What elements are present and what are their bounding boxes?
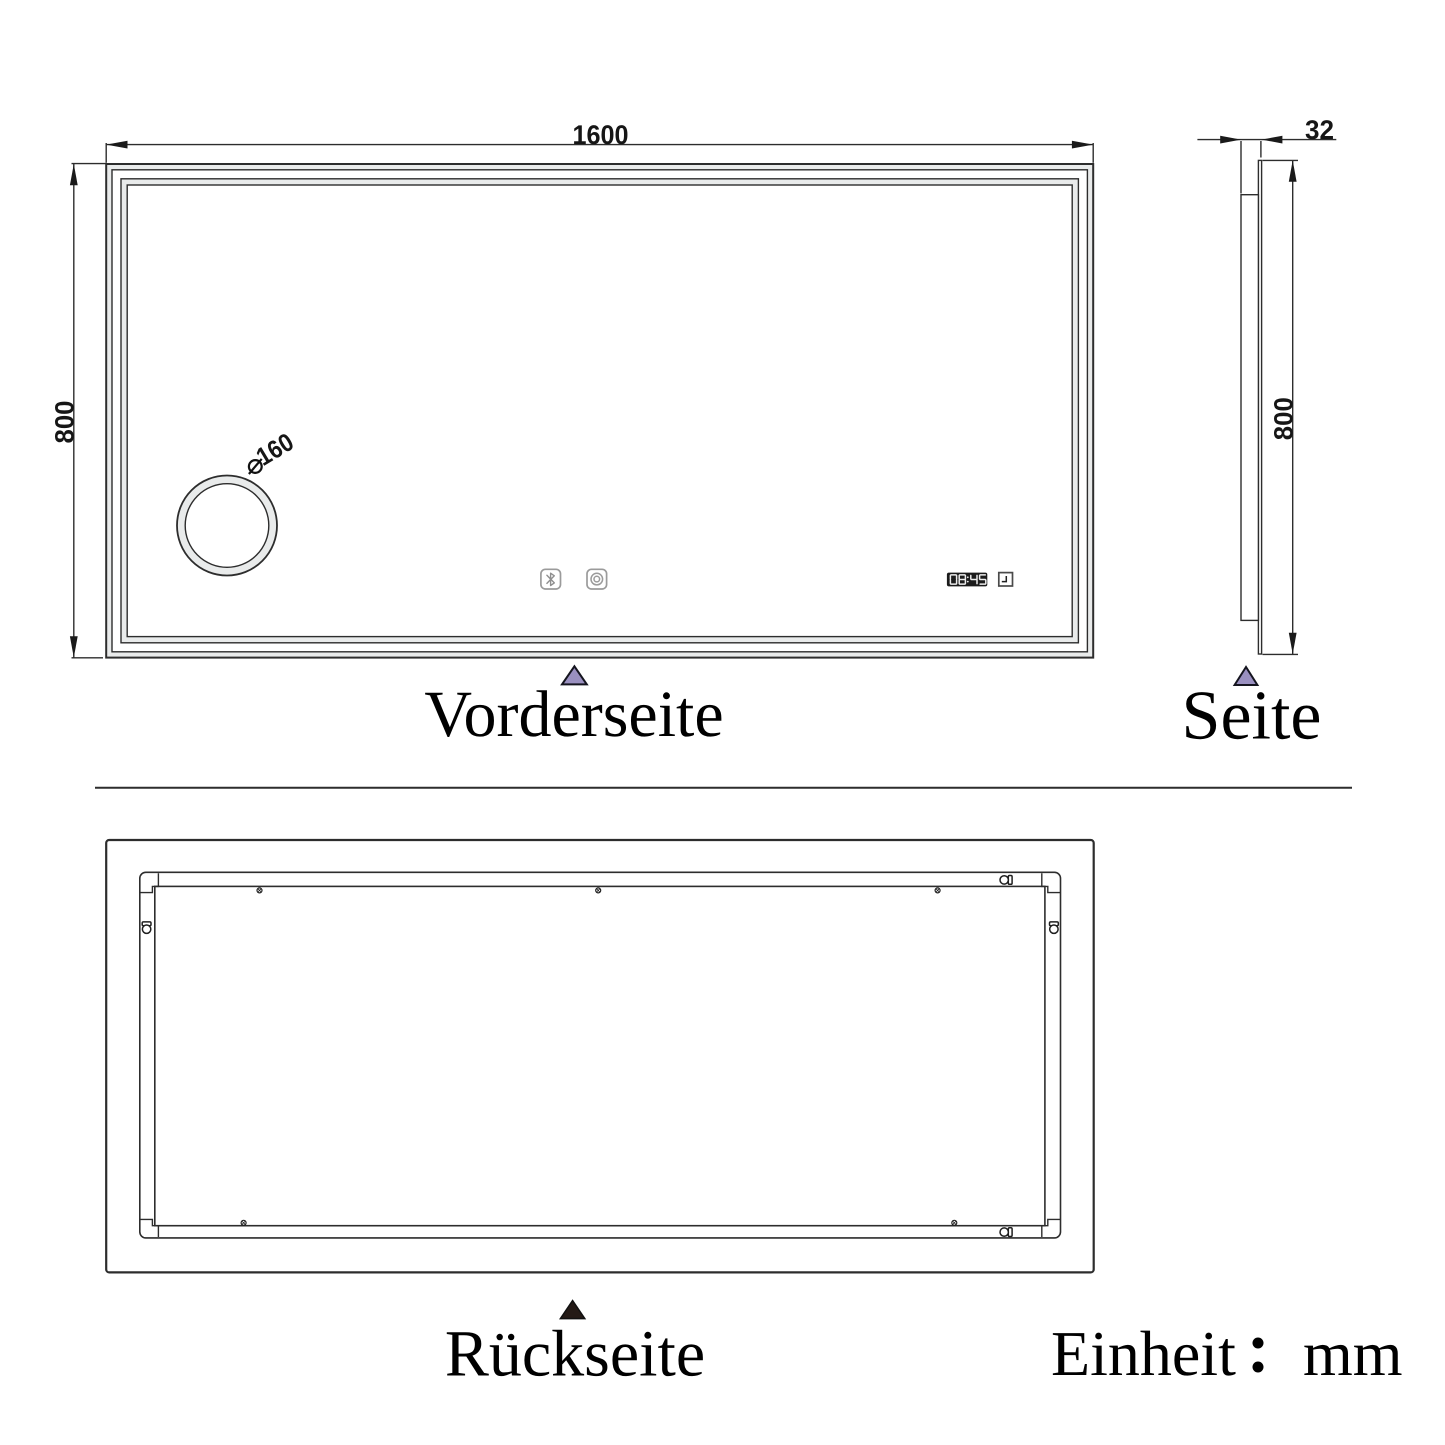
svg-text:Einheit: Einheit	[1051, 1318, 1236, 1389]
svg-text:Vorderseite: Vorderseite	[424, 678, 723, 751]
svg-text:800: 800	[49, 401, 79, 444]
svg-text:mm: mm	[1303, 1318, 1403, 1389]
svg-text:1600: 1600	[573, 120, 629, 150]
svg-text:Seite: Seite	[1182, 677, 1322, 754]
svg-text:32: 32	[1305, 115, 1334, 145]
svg-text:Rückseite: Rückseite	[445, 1318, 705, 1391]
svg-text:800: 800	[1269, 397, 1299, 440]
